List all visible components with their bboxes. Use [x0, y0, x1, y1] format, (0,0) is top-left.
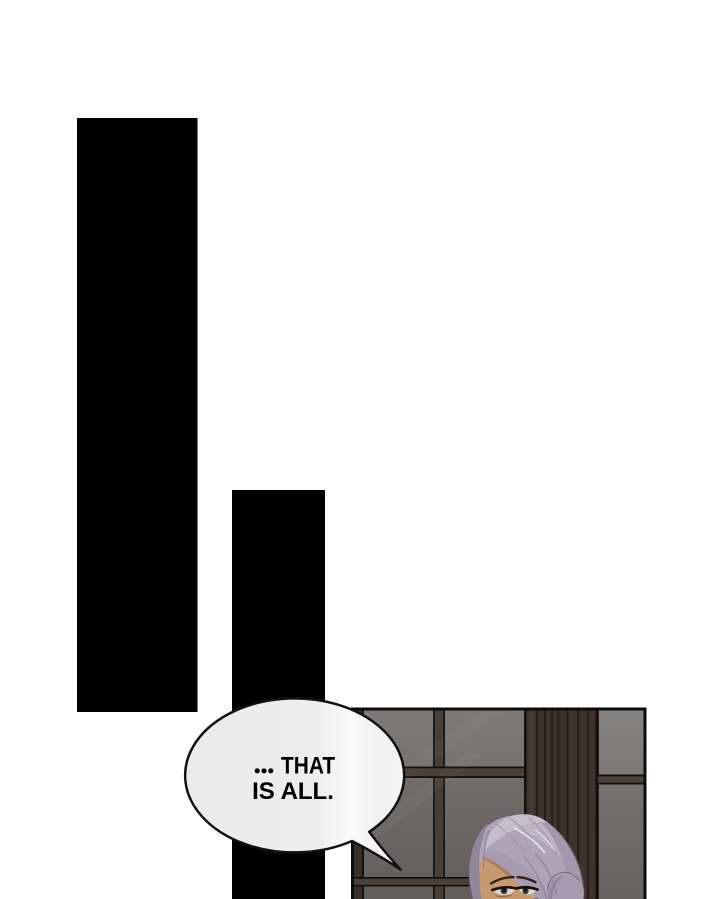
svg-text:IS ALL.: IS ALL.: [252, 778, 334, 805]
svg-text:THAT: THAT: [281, 752, 335, 779]
